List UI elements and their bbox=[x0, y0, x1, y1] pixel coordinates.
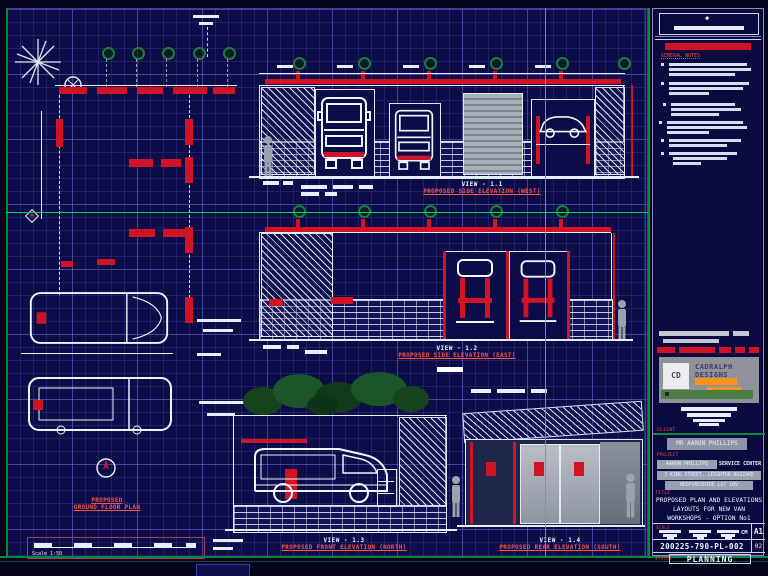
roller-shutter-door bbox=[463, 93, 523, 175]
vehicle-on-lift-graphic bbox=[510, 252, 566, 338]
drawing-title-line1: PROPOSED PLAN AND ELEVATIONS bbox=[655, 496, 763, 505]
paper-size: A1 bbox=[751, 524, 765, 540]
grid-tick bbox=[361, 219, 365, 227]
dim-text-bar bbox=[287, 345, 299, 349]
view-4-label: VIEW - 1.4 bbox=[475, 537, 645, 544]
dimension-line bbox=[21, 353, 173, 354]
units-text: CM bbox=[741, 530, 748, 536]
diamond-logo-icon: ◆ bbox=[705, 14, 709, 22]
dim-text-bar bbox=[203, 329, 233, 332]
lift-bay bbox=[509, 251, 569, 341]
company-logo: CD CADRALPH DESIGNS bbox=[659, 357, 759, 403]
van-plan-graphic bbox=[25, 371, 175, 437]
grid-drop-line bbox=[227, 59, 228, 87]
wall-segment bbox=[213, 87, 235, 94]
dim-text-bar bbox=[213, 547, 233, 550]
lift-bay bbox=[445, 251, 507, 341]
grid-bubble bbox=[102, 47, 115, 60]
trees-graphic bbox=[239, 367, 431, 419]
ground-line bbox=[457, 525, 645, 527]
project-line1b: SERVICE CENTER bbox=[719, 461, 761, 467]
project-line1a: AARON PHILLIPS bbox=[657, 460, 717, 469]
red-column bbox=[443, 251, 446, 339]
dim-text-bar bbox=[325, 192, 337, 196]
drawing-title-line3: WORKSHOPS - OPTION No1 bbox=[655, 514, 763, 523]
wall-segment bbox=[97, 259, 115, 265]
person-silhouette bbox=[261, 135, 275, 179]
plan-title-line2: GROUND FLOOR PLAN bbox=[47, 504, 167, 511]
dim-text-bar bbox=[283, 181, 293, 185]
hatched-panel bbox=[399, 417, 447, 509]
view-2-label: VIEW - 1.2 bbox=[377, 345, 537, 352]
sheet-divider-green bbox=[648, 8, 650, 556]
grid-drop-line bbox=[197, 59, 198, 87]
dim-text-bar bbox=[471, 389, 491, 393]
grid-drop-line bbox=[207, 27, 208, 57]
view-4-caption: VIEW - 1.4 PROPOSED REAR ELEVATION (SOUT… bbox=[475, 537, 645, 551]
grid-bubble bbox=[618, 57, 631, 70]
wall-segment bbox=[56, 119, 63, 147]
logo-monogram: CD bbox=[663, 363, 689, 389]
dim-text-bar bbox=[305, 350, 327, 354]
project-line3: BEDFORDSHIRE LU7 1BV bbox=[665, 481, 753, 490]
command-box[interactable] bbox=[196, 564, 250, 576]
dim-text-bar bbox=[469, 65, 485, 68]
dim-text-bar bbox=[497, 389, 525, 393]
wall-segment bbox=[163, 229, 185, 237]
view-2-title: PROPOSED SIDE ELEVATION (EAST) bbox=[377, 352, 537, 359]
crosshair-vertical[interactable] bbox=[545, 8, 546, 556]
client-name: MR AARON PHILLIPS bbox=[667, 438, 747, 450]
wall-segment bbox=[185, 227, 193, 253]
ground-line bbox=[225, 529, 457, 531]
person-silhouette bbox=[615, 299, 629, 343]
red-edge-line bbox=[631, 85, 633, 177]
grid-bubble bbox=[293, 57, 306, 70]
wall-line bbox=[55, 85, 237, 86]
drawing-title-line2: LAYOUTS FOR NEW VAN bbox=[655, 505, 763, 514]
wall-segment bbox=[185, 297, 193, 323]
red-column bbox=[567, 251, 570, 339]
workshop-bay bbox=[531, 99, 595, 177]
workshop-bay bbox=[315, 89, 375, 179]
starburst-symbol bbox=[13, 37, 63, 87]
sheet-border-green-left bbox=[6, 8, 8, 556]
grid-tick bbox=[296, 219, 300, 227]
dim-text-bar bbox=[199, 22, 213, 25]
drawing-sheet: PROPOSED GROUND FLOOR PLAN Scale 1:50 bbox=[6, 8, 648, 558]
north-compass-symbol bbox=[95, 457, 117, 479]
workshop-bay bbox=[389, 103, 441, 179]
ground-line bbox=[249, 339, 633, 341]
dim-text-bar bbox=[301, 185, 327, 189]
view-4-title: PROPOSED REAR ELEVATION (SOUTH) bbox=[475, 544, 645, 551]
plan-title-line1: PROPOSED bbox=[47, 497, 167, 504]
titleblock-green-line bbox=[653, 433, 765, 435]
dim-text-bar bbox=[359, 185, 373, 189]
grid-bubble bbox=[132, 47, 145, 60]
dim-text-bar bbox=[197, 319, 241, 322]
view-2-caption: VIEW - 1.2 PROPOSED SIDE ELEVATION (EAST… bbox=[377, 345, 537, 359]
wall-segment bbox=[129, 159, 153, 167]
hatched-panel bbox=[261, 233, 333, 337]
status-row: STATUS PLANNING bbox=[653, 552, 765, 565]
dim-text-bar bbox=[207, 413, 235, 416]
drawing-number-row: 200225-790-PL-002 02 bbox=[653, 539, 765, 552]
drawing-number: 200225-790-PL-002 bbox=[653, 542, 751, 551]
cad-application-canvas: PROPOSED GROUND FLOOR PLAN Scale 1:50 bbox=[0, 0, 768, 576]
dimension-line bbox=[41, 111, 42, 219]
grid-bubble bbox=[193, 47, 206, 60]
van-plan-graphic bbox=[27, 287, 171, 349]
rear-wall bbox=[465, 439, 643, 527]
hatched-panel bbox=[595, 87, 625, 175]
dim-text-bar bbox=[277, 65, 293, 68]
logo-dot bbox=[665, 392, 669, 396]
grid-bubble bbox=[358, 57, 371, 70]
project-line2: 3 KING STREET, LEIGHTON BUZZARD bbox=[657, 471, 761, 480]
dim-text-bar bbox=[213, 539, 243, 542]
notes-header-bar bbox=[665, 43, 751, 50]
red-column bbox=[506, 251, 509, 339]
van-front-graphic bbox=[316, 90, 372, 174]
van-front-graphic bbox=[390, 104, 438, 174]
view-1-label: VIEW - 1.1 bbox=[407, 181, 557, 188]
grid-drop-line bbox=[136, 59, 137, 87]
vehicle-on-lift-graphic bbox=[446, 252, 504, 338]
red-detail bbox=[331, 297, 353, 304]
grid-bubble bbox=[556, 57, 569, 70]
wall-segment bbox=[185, 119, 193, 145]
dimension-line bbox=[259, 73, 625, 74]
scale-row: SCALE CM A1 bbox=[653, 523, 765, 539]
logo-green-strip bbox=[661, 390, 753, 399]
grid-bubble bbox=[490, 57, 503, 70]
grid-tick bbox=[427, 219, 431, 227]
dim-text-bar bbox=[193, 15, 219, 18]
logo-name-line1: CADRALPH bbox=[695, 363, 733, 371]
person-silhouette bbox=[623, 467, 638, 525]
van-side-graphic bbox=[247, 441, 397, 505]
view-3-label: VIEW - 1.3 bbox=[259, 537, 429, 544]
wall-segment bbox=[129, 229, 155, 237]
dim-text-bar bbox=[333, 185, 353, 189]
grid-drop-line bbox=[106, 59, 107, 87]
drawing-title: PROPOSED PLAN AND ELEVATIONS LAYOUTS FOR… bbox=[655, 496, 763, 523]
grid-drop-line bbox=[166, 59, 167, 87]
wall-segment bbox=[59, 87, 87, 94]
view-1-caption: VIEW - 1.1 PROPOSED SIDE ELEVATION (WEST… bbox=[407, 181, 557, 195]
project-label: PROJECT bbox=[657, 453, 679, 458]
title-block: ◆ GENERAL NOTES bbox=[652, 8, 764, 556]
grid-tick bbox=[493, 219, 497, 227]
eaves-line bbox=[259, 85, 625, 86]
ground-line bbox=[249, 176, 639, 178]
dim-text-bar bbox=[197, 353, 221, 356]
grid-tick bbox=[559, 219, 563, 227]
red-detail bbox=[269, 299, 283, 306]
person-silhouette bbox=[449, 471, 463, 523]
view-3-caption: VIEW - 1.3 PROPOSED FRONT ELEVATION (NOR… bbox=[259, 537, 429, 551]
dim-text-bar bbox=[263, 345, 281, 349]
status-badge: PLANNING bbox=[669, 554, 751, 564]
sheet-divider-blue bbox=[645, 8, 646, 556]
wall-segment bbox=[137, 87, 163, 94]
dim-text-bar bbox=[337, 65, 353, 68]
plan-title: PROPOSED GROUND FLOOR PLAN bbox=[47, 497, 167, 511]
parapet-line bbox=[233, 415, 447, 416]
view-1-title: PROPOSED SIDE ELEVATION (WEST) bbox=[407, 188, 557, 195]
view-3-title: PROPOSED FRONT ELEVATION (NORTH) bbox=[259, 544, 429, 551]
crosshair-horizontal[interactable] bbox=[6, 212, 648, 213]
notes-header: GENERAL NOTES bbox=[661, 53, 700, 59]
dim-text-bar bbox=[437, 367, 463, 372]
titleblock-header: ◆ bbox=[659, 13, 759, 35]
grid-bubble bbox=[424, 57, 437, 70]
dim-text-bar bbox=[301, 192, 319, 196]
wall-segment bbox=[185, 157, 193, 183]
logo-orange-bar bbox=[695, 378, 737, 385]
dim-text-bar bbox=[263, 181, 279, 185]
dim-text-bar bbox=[535, 65, 551, 68]
sloped-roof-hatch bbox=[462, 401, 644, 443]
wall-segment bbox=[161, 159, 181, 167]
wall-segment bbox=[97, 87, 127, 94]
grid-bubble bbox=[223, 47, 236, 60]
roof-beam bbox=[265, 79, 621, 84]
grid-bubble bbox=[162, 47, 175, 60]
crate-stack bbox=[377, 469, 397, 507]
wall-segment bbox=[61, 261, 73, 267]
wall-segment bbox=[173, 87, 207, 94]
dim-text-bar bbox=[403, 65, 419, 68]
